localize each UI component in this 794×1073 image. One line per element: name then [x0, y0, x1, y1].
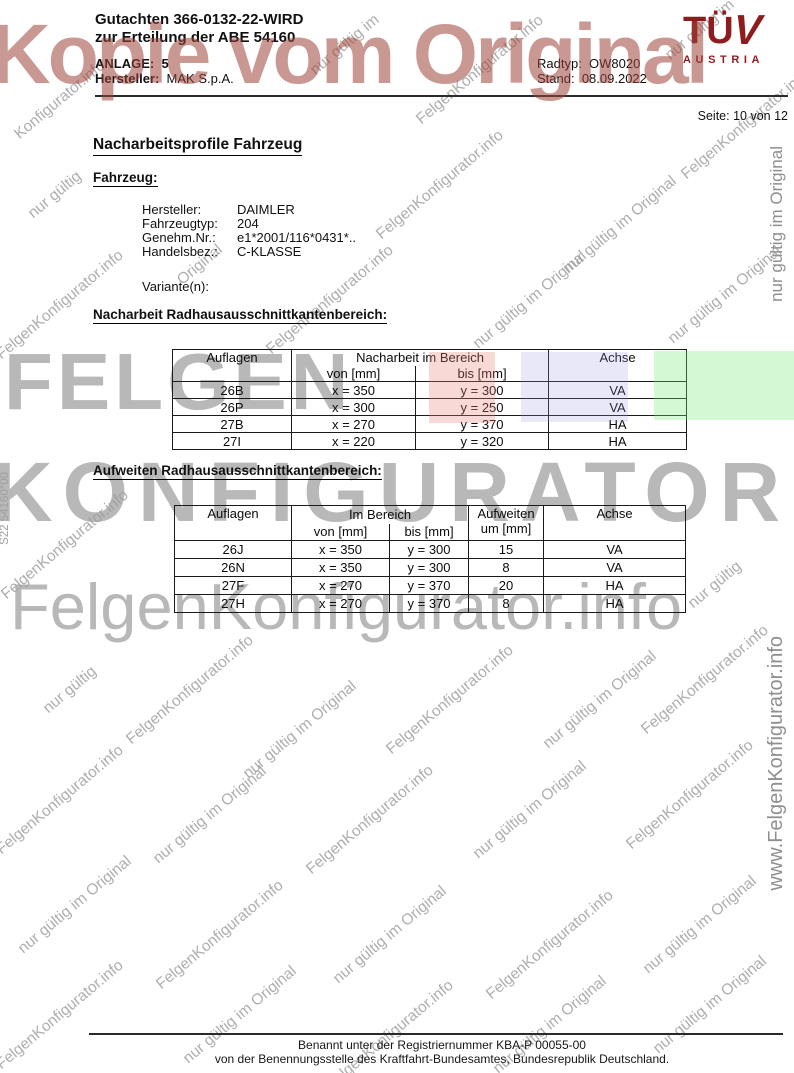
- table-cell: VA: [549, 382, 687, 399]
- footer-line2: von der Benennungsstelle des Kraftfahrt-…: [90, 1052, 794, 1066]
- col-header-auflagen: Auflagen: [175, 506, 292, 541]
- table-row: 26Px = 300y = 250VA: [173, 399, 687, 416]
- table2-body: 26Jx = 350y = 30015VA26Nx = 350y = 3008V…: [175, 541, 686, 613]
- table-row: 27Fx = 270y = 37020HA: [175, 577, 686, 595]
- vehicle-heading: Fahrzeug:: [93, 170, 158, 187]
- table-row: 26Jx = 350y = 30015VA: [175, 541, 686, 559]
- table-cell: 26P: [173, 399, 292, 416]
- table-cell: x = 220: [292, 433, 416, 450]
- variante-label: Variante(n):: [142, 279, 209, 294]
- table-cell: x = 350: [292, 382, 416, 399]
- table-cell: y = 300: [416, 382, 549, 399]
- radtyp-value: OW8020: [589, 56, 640, 71]
- vehicle-row-label: Hersteller:: [142, 202, 201, 217]
- vehicle-row-value: DAIMLER: [237, 202, 295, 217]
- tuv-logo-text: TÜV: [683, 8, 762, 50]
- anlage-label: ANLAGE:: [95, 56, 154, 71]
- vehicle-row-value: C-KLASSE: [237, 244, 301, 259]
- table-cell: 26J: [175, 541, 292, 559]
- table-cell: HA: [544, 577, 686, 595]
- content-layer: Gutachten 366-0132-22-WIRD zur Erteilung…: [0, 0, 794, 1073]
- table-cell: x = 350: [292, 559, 390, 577]
- table-cell: 27I: [173, 433, 292, 450]
- sub-header-bis: bis [mm]: [416, 366, 549, 382]
- table-cell: 27F: [175, 577, 292, 595]
- table-row: 26Bx = 350y = 300VA: [173, 382, 687, 399]
- table-cell: 27H: [175, 595, 292, 613]
- col-header-bereich: Im Bereich: [292, 506, 469, 524]
- header-rule: [95, 95, 788, 97]
- vehicle-row-value: 204: [237, 216, 259, 231]
- anlage-line: ANLAGE: 5: [95, 56, 169, 71]
- table-cell: y = 370: [416, 416, 549, 433]
- col-header-achse: Achse: [549, 350, 687, 382]
- stand-label: Stand:: [537, 71, 575, 86]
- table2-heading: Aufweiten Radhausausschnittkantenbereich…: [93, 463, 382, 480]
- doc-title-line1: Gutachten 366-0132-22-WIRD: [95, 11, 303, 28]
- table-cell: y = 250: [416, 399, 549, 416]
- austria-logo-text: AUSTRIA: [683, 55, 783, 66]
- table-cell: 15: [469, 541, 544, 559]
- vehicle-row-label: Genehm.Nr.:: [142, 230, 216, 245]
- table-row: 27Hx = 270y = 3708HA: [175, 595, 686, 613]
- table-cell: VA: [544, 559, 686, 577]
- col-header-auflagen: Auflagen: [173, 350, 292, 382]
- table-cell: y = 370: [390, 595, 469, 613]
- col-header-bereich: Nacharbeit im Bereich: [292, 350, 549, 366]
- document-page: FELGEN KONFIGURATOR FelgenKonfigurator.i…: [0, 0, 794, 1073]
- table-cell: x = 270: [292, 595, 390, 613]
- table-cell: VA: [544, 541, 686, 559]
- table-cell: y = 370: [390, 577, 469, 595]
- doc-title-line2: zur Erteilung der ABE 54160: [95, 29, 295, 46]
- col-header-achse: Achse: [544, 506, 686, 541]
- sub-header-bis: bis [mm]: [390, 524, 469, 541]
- table-cell: HA: [549, 416, 687, 433]
- table-cell: 27B: [173, 416, 292, 433]
- table-cell: HA: [549, 433, 687, 450]
- table-row: 27Ix = 220y = 320HA: [173, 433, 687, 450]
- radtyp-label: Radtyp:: [537, 56, 582, 71]
- table-cell: 8: [469, 595, 544, 613]
- hersteller-line: Hersteller: MAK S.p.A.: [95, 71, 234, 86]
- vehicle-row-value: e1*2001/116*0431*..: [237, 230, 356, 245]
- table-cell: x = 270: [292, 577, 390, 595]
- nacharbeit-table: Auflagen Nacharbeit im Bereich Achse von…: [172, 349, 687, 450]
- table-cell: y = 300: [390, 541, 469, 559]
- footer-rule: [89, 1033, 783, 1035]
- table1-heading: Nacharbeit Radhausausschnittkantenbereic…: [93, 307, 387, 324]
- main-heading: Nacharbeitsprofile Fahrzeug: [93, 136, 302, 156]
- radtyp-line: Radtyp: OW8020: [537, 56, 640, 71]
- table-cell: 20: [469, 577, 544, 595]
- stand-line: Stand: 08.09.2022: [537, 71, 647, 86]
- table-cell: y = 300: [390, 559, 469, 577]
- col-header-aufweiten: Aufweiten um [mm]: [469, 506, 544, 541]
- anlage-value: 5: [161, 56, 168, 71]
- table-cell: y = 320: [416, 433, 549, 450]
- vehicle-row-label: Handelsbez.:: [142, 244, 218, 259]
- table-row: 26Nx = 350y = 3008VA: [175, 559, 686, 577]
- table1-body: 26Bx = 350y = 300VA26Px = 300y = 250VA27…: [173, 382, 687, 450]
- table-cell: HA: [544, 595, 686, 613]
- table-cell: VA: [549, 399, 687, 416]
- aufweiten-table: Auflagen Im Bereich Aufweiten um [mm] Ac…: [174, 505, 686, 613]
- stand-value: 08.09.2022: [582, 71, 647, 86]
- hersteller-label: Hersteller:: [95, 71, 159, 86]
- table-cell: x = 350: [292, 541, 390, 559]
- table-cell: 26N: [175, 559, 292, 577]
- table-row: 27Bx = 270y = 370HA: [173, 416, 687, 433]
- table-cell: 26B: [173, 382, 292, 399]
- table-cell: x = 300: [292, 399, 416, 416]
- tuv-austria-logo: TÜV AUSTRIA: [683, 8, 783, 66]
- table-cell: x = 270: [292, 416, 416, 433]
- footer-line1: Benannt unter der Registriernummer KBA-P…: [90, 1038, 794, 1052]
- page-number: Seite: 10 von 12: [656, 109, 788, 123]
- sub-header-von: von [mm]: [292, 524, 390, 541]
- sub-header-von: von [mm]: [292, 366, 416, 382]
- vehicle-row-label: Fahrzeugtyp:: [142, 216, 218, 231]
- hersteller-value: MAK S.p.A.: [167, 71, 234, 86]
- table-cell: 8: [469, 559, 544, 577]
